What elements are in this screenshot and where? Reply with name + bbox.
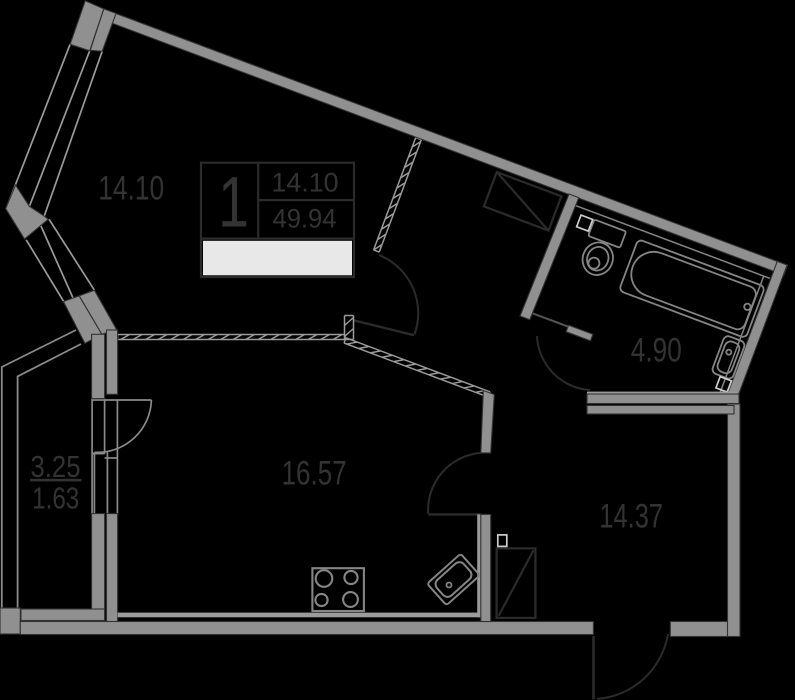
svg-text:14.10: 14.10 xyxy=(98,170,164,208)
svg-text:16.57: 16.57 xyxy=(282,455,347,493)
svg-text:49.94: 49.94 xyxy=(273,204,337,234)
svg-text:3.25: 3.25 xyxy=(31,449,81,484)
svg-text:1.63: 1.63 xyxy=(32,481,79,516)
svg-text:4.90: 4.90 xyxy=(631,332,682,370)
svg-text:14.10: 14.10 xyxy=(271,167,338,197)
svg-text:14.37: 14.37 xyxy=(599,498,663,536)
svg-text:1: 1 xyxy=(218,163,249,242)
